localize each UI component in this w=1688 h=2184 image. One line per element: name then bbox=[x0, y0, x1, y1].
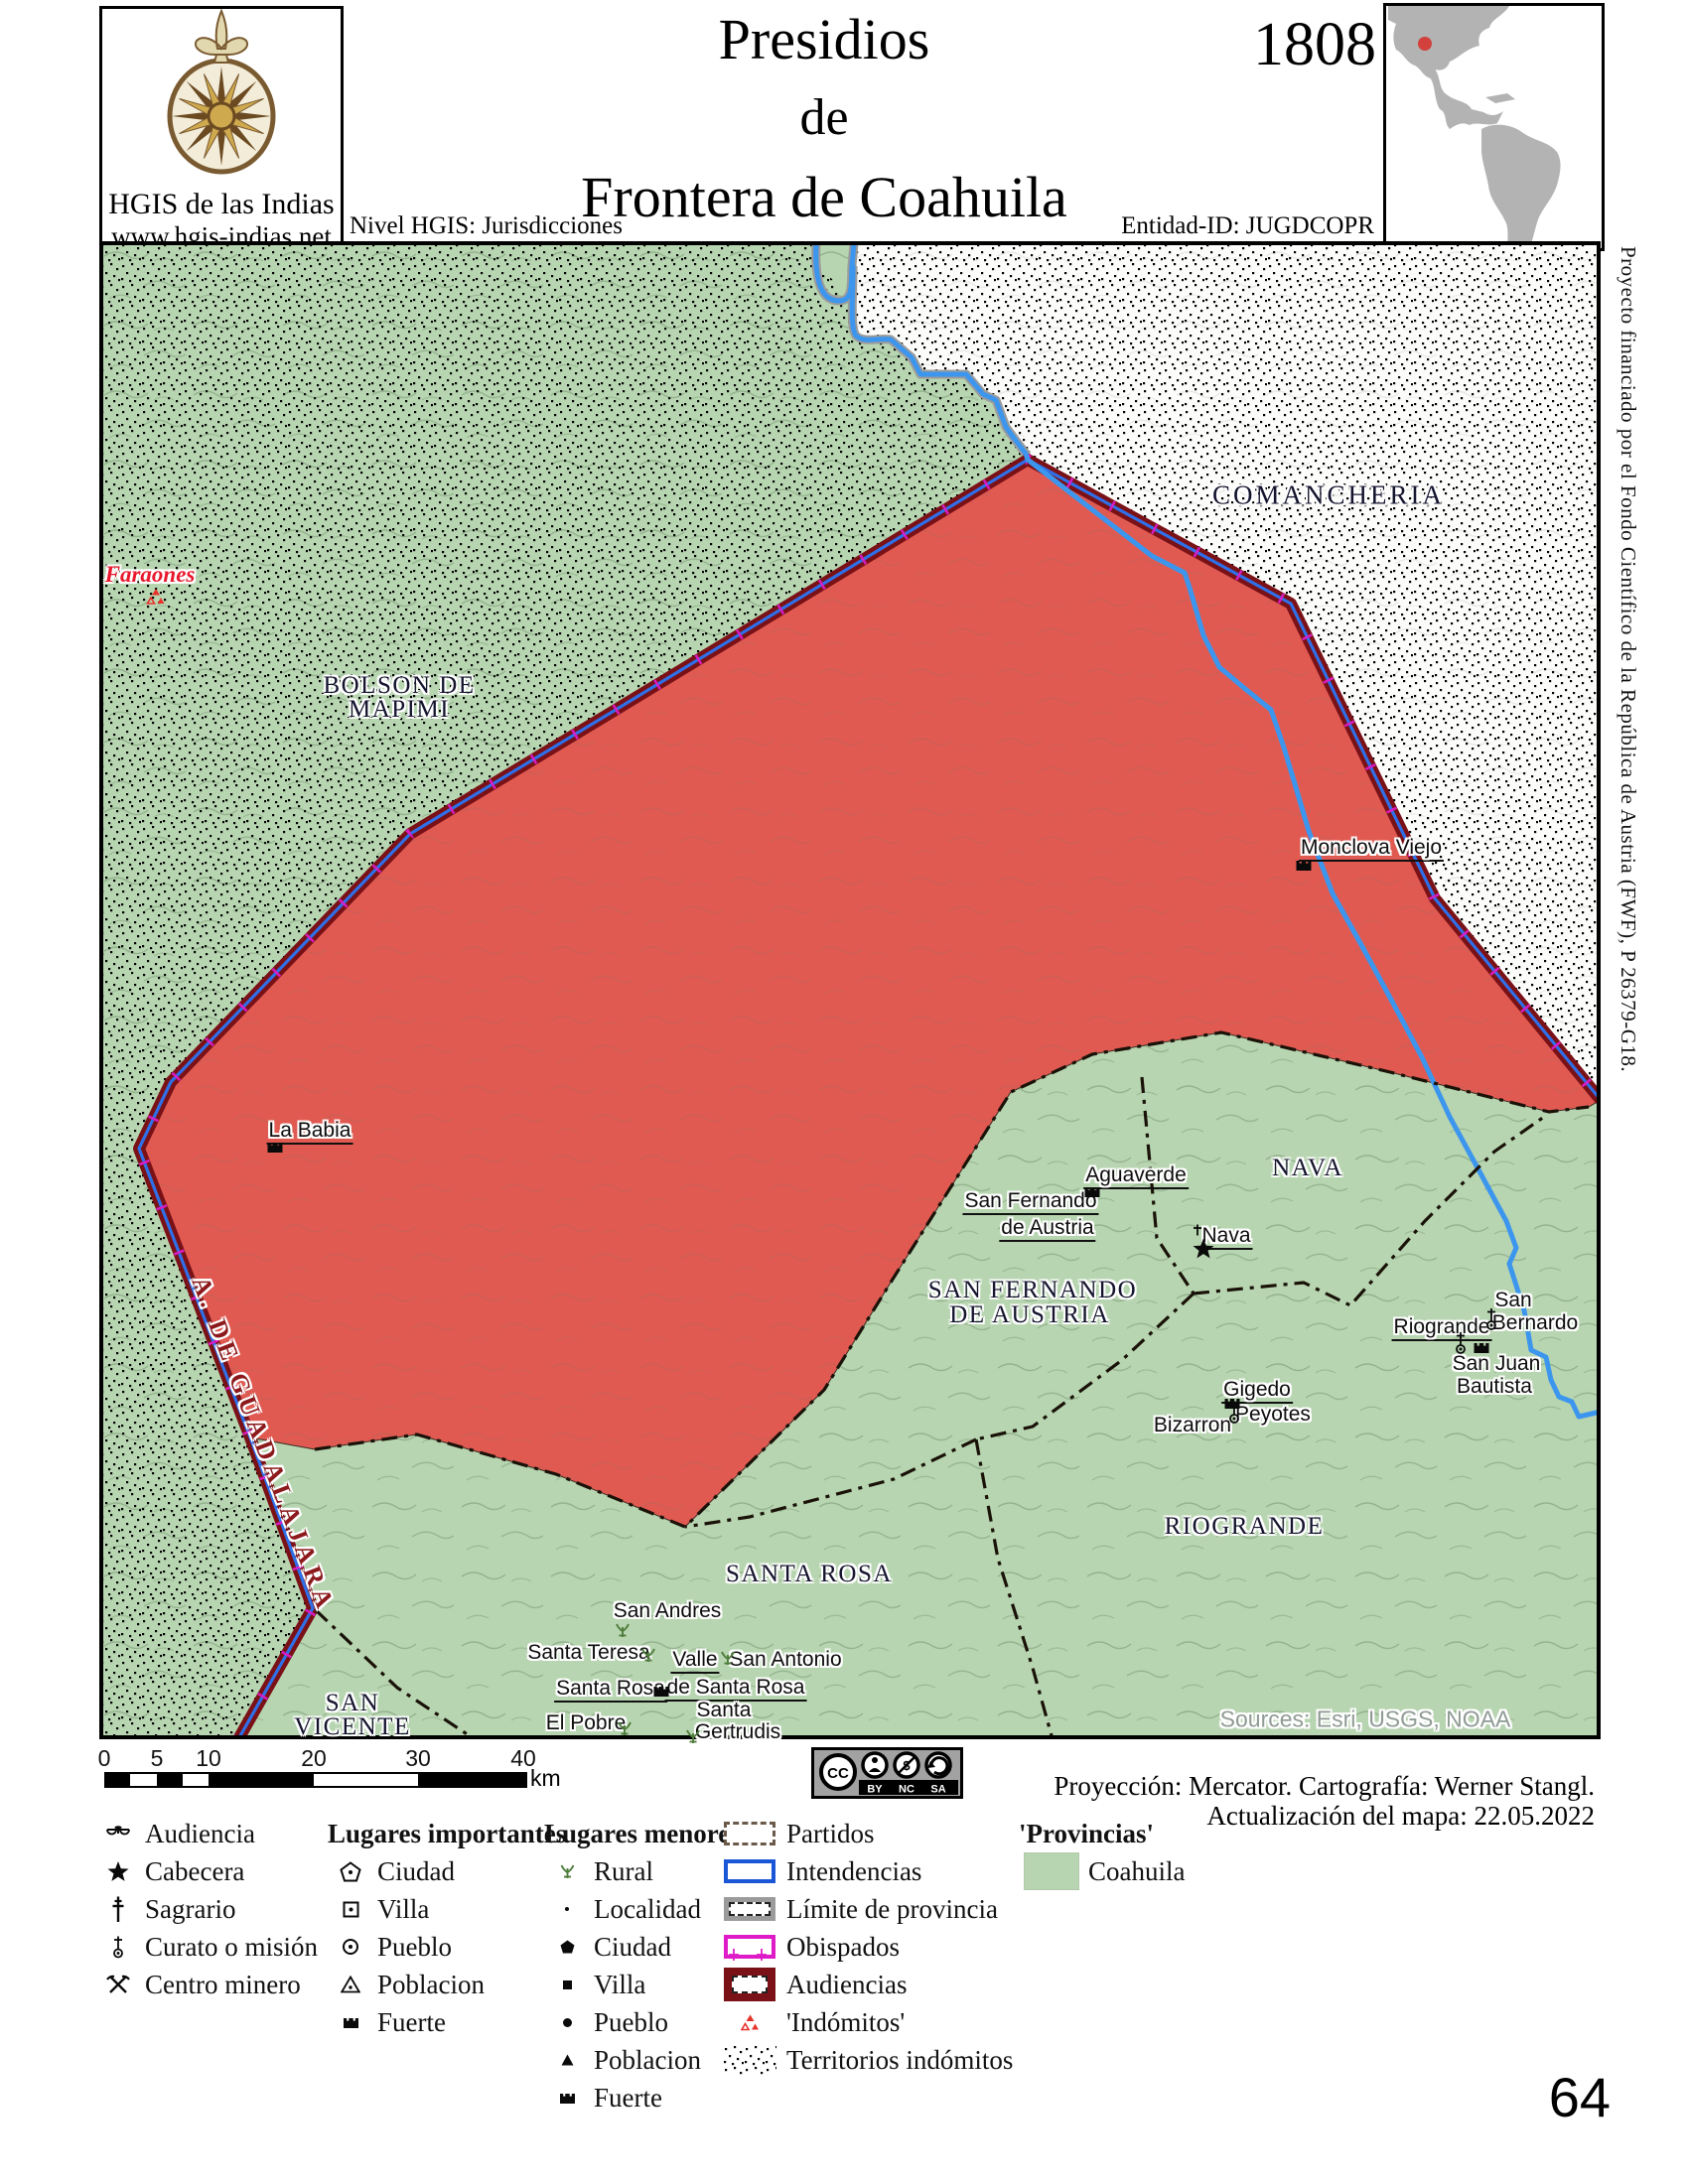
cuba-silhouette bbox=[1485, 93, 1515, 103]
fort-legend-icon bbox=[544, 2091, 590, 2105]
legend-item: Localidad bbox=[544, 1890, 741, 1928]
legend-item-label: Pueblo bbox=[373, 1932, 452, 1963]
obispados-swatch bbox=[724, 1935, 775, 1959]
scale-tick-label: 0 bbox=[98, 1745, 111, 1772]
legend-item-label: Intendencias bbox=[782, 1856, 921, 1887]
scale-tick-label: 5 bbox=[151, 1745, 164, 1772]
map-extent-dot bbox=[1418, 37, 1432, 51]
villa_f-legend-icon bbox=[544, 1979, 590, 1990]
audiencias-legend-icon bbox=[717, 1968, 782, 2001]
legend-item: Territorios indómitos bbox=[717, 2041, 1013, 2079]
legend-lugares-menores-column: Lugares menoresRuralLocalidadCiudadVilla… bbox=[544, 1815, 741, 2116]
legend-item-label: Ciudad bbox=[590, 1932, 671, 1963]
projection-credit: Proyección: Mercator. Cartografía: Werne… bbox=[1054, 1771, 1595, 1802]
north-america-silhouette bbox=[1388, 6, 1509, 78]
star-legend-icon bbox=[95, 1861, 141, 1882]
audiencia-legend-icon bbox=[95, 1826, 141, 1842]
pueblo_f-legend-icon bbox=[544, 2017, 590, 2028]
legend-item-label: Poblacion bbox=[590, 2045, 701, 2076]
legend-item-label: Sagrario bbox=[141, 1894, 235, 1925]
fort-legend-icon bbox=[328, 2015, 373, 2029]
coahuila-swatch bbox=[1024, 1852, 1079, 1890]
legend-item: Partidos bbox=[717, 1815, 1013, 1852]
legend-item: Audiencias bbox=[717, 1966, 1013, 2003]
scale-tick-label: 30 bbox=[405, 1745, 431, 1772]
page-number: 64 bbox=[1549, 2065, 1611, 2129]
map-canvas: BOLSON DEMAPIMICOMANCHERIANAVASAN FERNAN… bbox=[99, 241, 1601, 1739]
indomitos-legend-icon bbox=[717, 2007, 782, 2038]
obispados-legend-icon bbox=[717, 1935, 782, 1959]
scale-tick-label: 10 bbox=[196, 1745, 221, 1772]
villa_o-legend-icon bbox=[328, 1901, 373, 1918]
legend-item: Pueblo bbox=[328, 1928, 566, 1966]
legend-item: Villa bbox=[328, 1890, 566, 1928]
americas-locator-inset bbox=[1383, 3, 1605, 251]
legend-item-label: Territorios indómitos bbox=[782, 2045, 1013, 2076]
legend-item: Poblacion bbox=[544, 2041, 741, 2079]
legend-item-label: Rural bbox=[590, 1856, 653, 1887]
legend-item: Poblacion bbox=[328, 1966, 566, 2003]
legend-item-label: Fuerte bbox=[590, 2083, 662, 2114]
intendencias-swatch bbox=[724, 1859, 775, 1883]
localidad-legend-icon bbox=[544, 1905, 590, 1913]
scale-bar bbox=[104, 1772, 527, 1788]
legend-item-label: Cabecera bbox=[141, 1856, 244, 1887]
ciudad_f-legend-icon bbox=[544, 1940, 590, 1954]
south-america-silhouette bbox=[1481, 125, 1561, 248]
legend-item: Límite de provincia bbox=[717, 1890, 1013, 1928]
nivel-hgis-label: Nivel HGIS: Jurisdicciones bbox=[350, 212, 623, 240]
hgis-logo-box: HGIS de las Indias www.hgis-indias.net bbox=[99, 6, 344, 248]
legend-header: Lugares importantes bbox=[328, 1815, 566, 1852]
legend-item: Audiencia bbox=[95, 1815, 318, 1852]
title-line-1: Presidios bbox=[447, 0, 1201, 79]
indomitos-swatch bbox=[741, 2007, 760, 2038]
legend-item-label: Poblacion bbox=[373, 1970, 485, 2000]
svg-text:BY: BY bbox=[867, 1784, 883, 1796]
map-year: 1808 bbox=[1253, 10, 1376, 80]
legend-item: Coahuila bbox=[1019, 1852, 1185, 1890]
minero-legend-icon bbox=[95, 1975, 141, 1994]
legend-provincias-column: 'Provincias'Coahuila bbox=[1019, 1815, 1185, 1890]
poblacion_o-legend-icon bbox=[328, 1976, 373, 1993]
partidos-swatch bbox=[724, 1822, 775, 1845]
legend-item-label: Audiencias bbox=[782, 1970, 907, 2000]
legend-item-label: Localidad bbox=[590, 1894, 701, 1925]
legend-item-label: Coahuila bbox=[1084, 1856, 1185, 1887]
territorios-indomitos-swatch bbox=[723, 2045, 776, 2075]
legend-item: Rural bbox=[544, 1852, 741, 1890]
legend-item-label: Fuerte bbox=[373, 2007, 446, 2038]
audiencias-swatch bbox=[724, 1968, 775, 2001]
legend-item: Ciudad bbox=[328, 1852, 566, 1890]
legend-item-label: Audiencia bbox=[141, 1819, 255, 1849]
legend-item: Ciudad bbox=[544, 1928, 741, 1966]
title-line-2: de bbox=[447, 79, 1201, 157]
logo-title: HGIS de las Indias bbox=[102, 188, 341, 221]
curato-legend-icon bbox=[95, 1936, 141, 1959]
map-graphic bbox=[99, 241, 1601, 1739]
scale-unit-label: km bbox=[530, 1765, 561, 1792]
legend-item-label: Obispados bbox=[782, 1932, 900, 1963]
rural-legend-icon bbox=[544, 1863, 590, 1879]
legend-item: Obispados bbox=[717, 1928, 1013, 1966]
legend-item: Villa bbox=[544, 1966, 741, 2003]
legend-symbols-column: AudienciaCabeceraSagrarioCurato o misión… bbox=[95, 1815, 318, 2003]
legend-item-label: Villa bbox=[590, 1970, 645, 2000]
legend-item: Cabecera bbox=[95, 1852, 318, 1890]
legend-item: Intendencias bbox=[717, 1852, 1013, 1890]
legend-item: Centro minero bbox=[95, 1966, 318, 2003]
legend-item-label: Curato o misión bbox=[141, 1932, 318, 1963]
poblacion_f-legend-icon bbox=[544, 2054, 590, 2066]
intendencias-legend-icon bbox=[717, 1859, 782, 1883]
limite-legend-icon bbox=[717, 1897, 782, 1921]
partidos-legend-icon bbox=[717, 1822, 782, 1845]
funding-side-note: Proyecto financiado por el Fondo Científ… bbox=[1601, 246, 1640, 1715]
svg-text:SA: SA bbox=[930, 1784, 945, 1796]
legend-item-label: Centro minero bbox=[141, 1970, 301, 2000]
compass-rose-logo bbox=[102, 9, 341, 186]
scale-tick-label: 20 bbox=[301, 1745, 327, 1772]
ciudad_o-legend-icon bbox=[328, 1861, 373, 1882]
legend-item: 'Indómitos' bbox=[717, 2003, 1013, 2041]
legend-lugares-importantes-column: Lugares importantesCiudadVillaPuebloPobl… bbox=[328, 1815, 566, 2041]
sagrario-legend-icon bbox=[95, 1896, 141, 1923]
entidad-id-label: Entidad-ID: JUGDCOPR bbox=[1120, 212, 1374, 240]
legend-item-label: Límite de provincia bbox=[782, 1894, 998, 1925]
limite-provincia-swatch bbox=[724, 1897, 775, 1921]
stipple-legend-icon bbox=[717, 2045, 782, 2075]
legend-item: Fuerte bbox=[328, 2003, 566, 2041]
legend-header: 'Provincias' bbox=[1019, 1815, 1185, 1852]
scale-bar-numbers: 0510203040 bbox=[99, 1745, 556, 1771]
legend-item: Pueblo bbox=[544, 2003, 741, 2041]
cc-by-nc-sa-badge: CC $ BY NC SA bbox=[811, 1747, 963, 1804]
legend-item-label: Partidos bbox=[782, 1819, 875, 1849]
legend-item: Fuerte bbox=[544, 2079, 741, 2116]
svg-text:NC: NC bbox=[899, 1784, 914, 1796]
pueblo_o-legend-icon bbox=[328, 1938, 373, 1956]
legend-item: Curato o misión bbox=[95, 1928, 318, 1966]
legend-item: Sagrario bbox=[95, 1890, 318, 1928]
update-date-credit: Actualización del mapa: 22.05.2022 bbox=[1206, 1801, 1595, 1832]
legend-item-label: Pueblo bbox=[590, 2007, 668, 2038]
legend-item-label: 'Indómitos' bbox=[782, 2007, 905, 2038]
coahuila-legend-icon bbox=[1019, 1852, 1084, 1890]
svg-text:CC: CC bbox=[827, 1765, 849, 1782]
legend-header: Lugares menores bbox=[544, 1815, 741, 1852]
legend-lines-column: PartidosIntendenciasLímite de provinciaO… bbox=[717, 1815, 1013, 2079]
map-title: Presidios de Frontera de Coahuila bbox=[447, 0, 1201, 238]
legend-item-label: Ciudad bbox=[373, 1856, 455, 1887]
legend-item-label: Villa bbox=[373, 1894, 429, 1925]
